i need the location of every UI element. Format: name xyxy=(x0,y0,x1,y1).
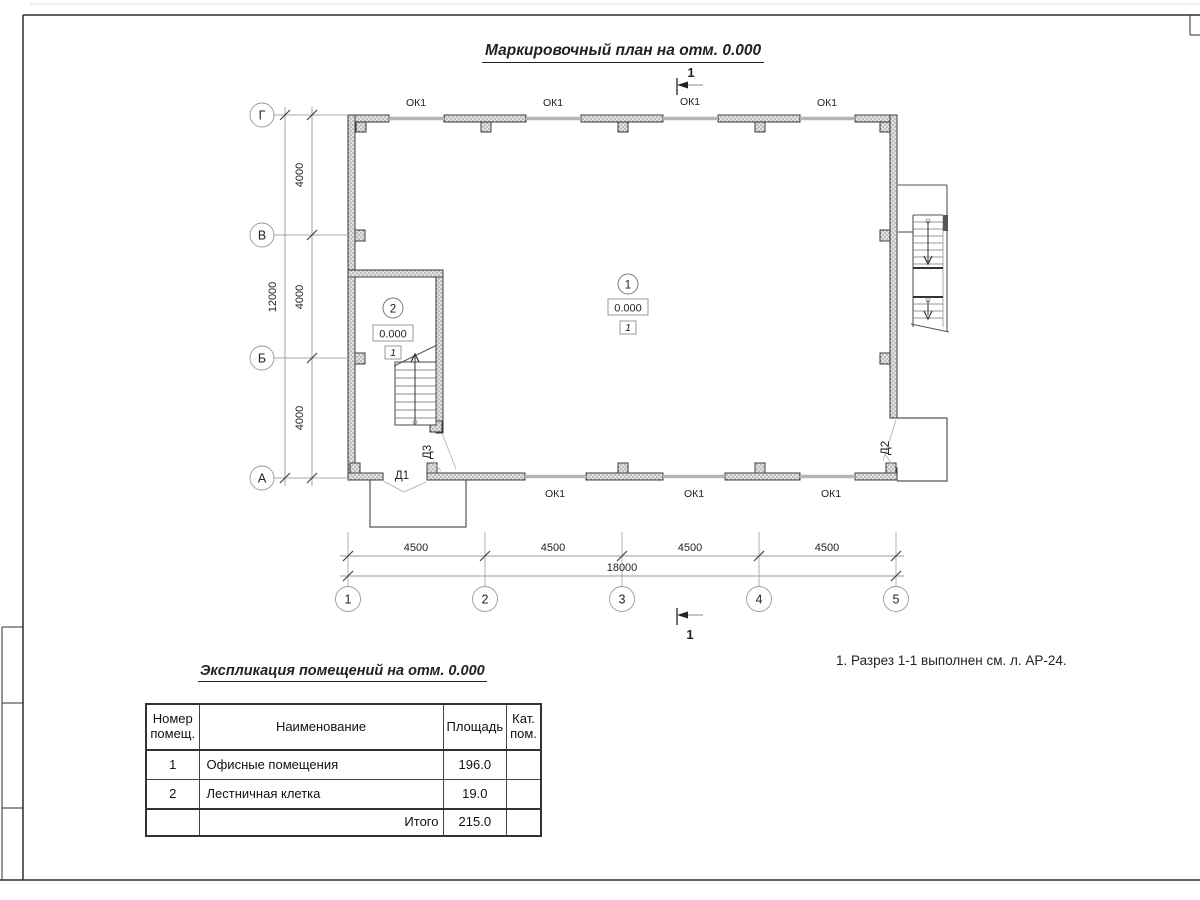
schedule-row: 1 Офисные помещения 196.0 xyxy=(146,750,541,780)
axis-label-g: Г xyxy=(259,109,266,123)
axis-label-b: Б xyxy=(258,352,266,366)
axes-bottom: 1 2 3 4 5 4500 4500 4500 4500 18000 xyxy=(336,532,909,612)
dim-4500: 4500 xyxy=(541,542,565,554)
window-label: ОК1 xyxy=(684,488,704,500)
cell-empty xyxy=(146,809,199,836)
window-label: ОК1 xyxy=(545,488,565,500)
drawing-sheet: Д1 Д2 Д3 ОК1 ОК1 ОК1 ОК1 ОК1 ОК1 ОК1 xyxy=(0,0,1200,900)
cell-room-number: 1 xyxy=(146,750,199,780)
window-label: ОК1 xyxy=(680,96,700,108)
cell-area: 19.0 xyxy=(443,780,507,810)
cell-category xyxy=(507,750,541,780)
window-label: ОК1 xyxy=(817,97,837,109)
plan-title: Маркировочный план на отм. 0.000 xyxy=(482,42,764,63)
schedule-header-row: Номер помещ. Наименование Площадь Кат. п… xyxy=(146,704,541,750)
cell-area: 196.0 xyxy=(443,750,507,780)
window-label: ОК1 xyxy=(821,488,841,500)
axis-label-4: 4 xyxy=(756,593,763,607)
room-schedule-table: Номер помещ. Наименование Площадь Кат. п… xyxy=(145,703,542,837)
note-text: 1. Разрез 1-1 выполнен см. л. АР-24. xyxy=(836,653,1067,668)
door-label-d1: Д1 xyxy=(395,470,409,482)
axis-label-v: В xyxy=(258,229,266,243)
window-label: ОК1 xyxy=(406,97,426,109)
axis-label-1: 1 xyxy=(345,593,352,607)
room-marker-1: 1 0.000 1 xyxy=(608,274,648,334)
window-openings xyxy=(389,119,855,477)
floor-type-mark: 1 xyxy=(390,347,396,359)
section-number: 1 xyxy=(686,627,693,642)
dim-4000: 4000 xyxy=(294,285,306,309)
room-number: 1 xyxy=(625,280,631,292)
schedule-total-row: Итого 215.0 xyxy=(146,809,541,836)
axes-left: Г В Б А 4000 4000 4000 12000 xyxy=(250,103,348,490)
cell-category xyxy=(507,780,541,810)
section-mark-bottom: 1 xyxy=(677,608,703,642)
room-elevation: 0.000 xyxy=(614,303,642,315)
axis-label-2: 2 xyxy=(482,593,489,607)
cell-room-name: Лестничная клетка xyxy=(199,780,443,810)
window-labels: ОК1 ОК1 ОК1 ОК1 ОК1 ОК1 ОК1 xyxy=(406,96,841,500)
cell-empty xyxy=(507,809,541,836)
header-category: Кат. пом. xyxy=(507,704,541,750)
dim-4500: 4500 xyxy=(678,542,702,554)
room-elevation: 0.000 xyxy=(379,329,407,341)
header-area: Площадь xyxy=(443,704,507,750)
room-number: 2 xyxy=(390,304,396,316)
header-room-name: Наименование xyxy=(199,704,443,750)
axis-label-5: 5 xyxy=(893,593,900,607)
schedule-row: 2 Лестничная клетка 19.0 xyxy=(146,780,541,810)
dim-4000: 4000 xyxy=(294,406,306,430)
dim-4500: 4500 xyxy=(815,542,839,554)
floor-type-mark: 1 xyxy=(625,322,631,334)
cell-room-number: 2 xyxy=(146,780,199,810)
total-label: Итого xyxy=(199,809,443,836)
dim-4500: 4500 xyxy=(404,542,428,554)
header-room-number: Номер помещ. xyxy=(146,704,199,750)
exterior-stair xyxy=(898,185,949,332)
door-label-d2: Д2 xyxy=(880,441,892,455)
schedule-title: Экспликация помещений на отм. 0.000 xyxy=(198,663,487,682)
axis-label-3: 3 xyxy=(619,593,626,607)
room-marker-2: 2 0.000 1 xyxy=(373,298,413,359)
section-mark-top: 1 xyxy=(677,65,703,95)
dim-12000: 12000 xyxy=(267,282,279,313)
section-number: 1 xyxy=(687,65,694,80)
total-area: 215.0 xyxy=(443,809,507,836)
door-label-d3: Д3 xyxy=(422,445,434,459)
cell-room-name: Офисные помещения xyxy=(199,750,443,780)
dim-18000: 18000 xyxy=(607,562,638,574)
doors: Д1 Д2 Д3 xyxy=(383,420,896,492)
axis-label-a: А xyxy=(258,472,267,486)
window-label: ОК1 xyxy=(543,97,563,109)
dim-4000: 4000 xyxy=(294,163,306,187)
